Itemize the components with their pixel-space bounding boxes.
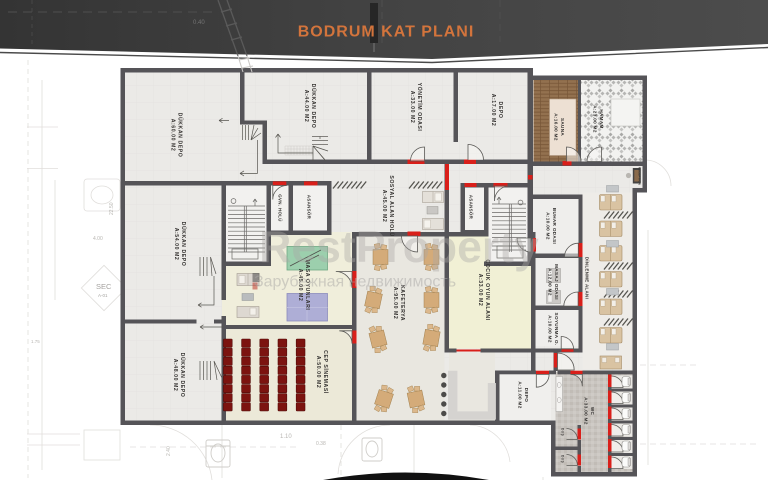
svg-text:GVN. HOLÜ: GVN. HOLÜ bbox=[278, 194, 283, 222]
svg-text:DUŞ: DUŞ bbox=[561, 455, 565, 463]
svg-text:DEPO: DEPO bbox=[524, 388, 529, 402]
svg-text:A:33.00 M2: A:33.00 M2 bbox=[409, 91, 415, 124]
svg-text:A:17.00 M2: A:17.00 M2 bbox=[490, 94, 496, 127]
svg-text:22.50: 22.50 bbox=[109, 202, 115, 215]
svg-text:A:45.00 M2: A:45.00 M2 bbox=[381, 190, 387, 223]
svg-text:0.40: 0.40 bbox=[193, 20, 205, 26]
svg-text:1.10: 1.10 bbox=[280, 434, 292, 440]
svg-text:A:44.00 M2: A:44.00 M2 bbox=[303, 90, 309, 123]
svg-text:YÖNETİM ODASI: YÖNETİM ODASI bbox=[416, 83, 423, 132]
svg-text:DİNLENME ALANI: DİNLENME ALANI bbox=[585, 257, 590, 299]
svg-text:DÜKKAN DEPO: DÜKKAN DEPO bbox=[179, 353, 186, 398]
svg-text:A:11.00 M2: A:11.00 M2 bbox=[518, 381, 523, 408]
svg-text:A:95.00 M2: A:95.00 M2 bbox=[392, 287, 398, 320]
svg-text:DEPO: DEPO bbox=[497, 102, 503, 119]
svg-text:A:50.00 M2: A:50.00 M2 bbox=[315, 356, 321, 389]
svg-text:A:10.00 M2: A:10.00 M2 bbox=[548, 315, 553, 343]
svg-text:DÜKKAN DEPO: DÜKKAN DEPO bbox=[180, 222, 187, 267]
svg-text:RECEPTION: RECEPTION bbox=[638, 167, 642, 185]
svg-text:SAUNA: SAUNA bbox=[560, 118, 565, 136]
svg-text:DÜKKAN DEPO: DÜKKAN DEPO bbox=[177, 113, 184, 158]
svg-text:A-01: A-01 bbox=[98, 293, 108, 298]
svg-text:ASANSÖR: ASANSÖR bbox=[307, 195, 312, 220]
svg-text:DÜKKAN DEPO: DÜKKAN DEPO bbox=[310, 84, 317, 129]
svg-text:A:10.00 M2: A:10.00 M2 bbox=[546, 212, 551, 240]
svg-text:A:23.00 M2: A:23.00 M2 bbox=[593, 105, 598, 133]
svg-text:HAMAM: HAMAM bbox=[599, 109, 604, 128]
svg-text:A:12.00 M2: A:12.00 M2 bbox=[548, 268, 553, 296]
svg-text:CEP SİNEMASİ: CEP SİNEMASİ bbox=[322, 350, 329, 394]
svg-text:MASAJ ODASI: MASAJ ODASI bbox=[554, 264, 559, 300]
svg-text:A:60.00 M2: A:60.00 M2 bbox=[170, 119, 176, 152]
svg-text:A:48.00 M2: A:48.00 M2 bbox=[172, 359, 178, 392]
svg-text:SEC: SEC bbox=[96, 282, 112, 291]
svg-text:DUŞ: DUŞ bbox=[561, 428, 565, 436]
svg-text:A:33.00 M2: A:33.00 M2 bbox=[477, 274, 483, 307]
svg-text:A:54.00 M2: A:54.00 M2 bbox=[173, 228, 179, 261]
svg-text:2.40: 2.40 bbox=[166, 446, 172, 456]
svg-text:WC: WC bbox=[590, 407, 595, 416]
svg-text:0.38: 0.38 bbox=[316, 441, 326, 447]
svg-text:RestProperty: RestProperty bbox=[259, 223, 539, 272]
svg-text:BODRUM KAT PLANI: BODRUM KAT PLANI bbox=[298, 24, 475, 41]
svg-text:A:16.00 M2: A:16.00 M2 bbox=[554, 113, 559, 141]
svg-text:ASANSÖR: ASANSÖR bbox=[469, 195, 474, 220]
svg-text:A:33.00 M2: A:33.00 M2 bbox=[584, 397, 589, 425]
svg-text:4.00: 4.00 bbox=[93, 236, 103, 242]
svg-text:SOYUNMA O.: SOYUNMA O. bbox=[554, 313, 559, 346]
svg-text:1.75: 1.75 bbox=[31, 339, 40, 344]
svg-text:Зарубежная недвижимость: Зарубежная недвижимость bbox=[254, 274, 456, 291]
svg-text:BUHAR ODASI: BUHAR ODASI bbox=[552, 208, 557, 244]
